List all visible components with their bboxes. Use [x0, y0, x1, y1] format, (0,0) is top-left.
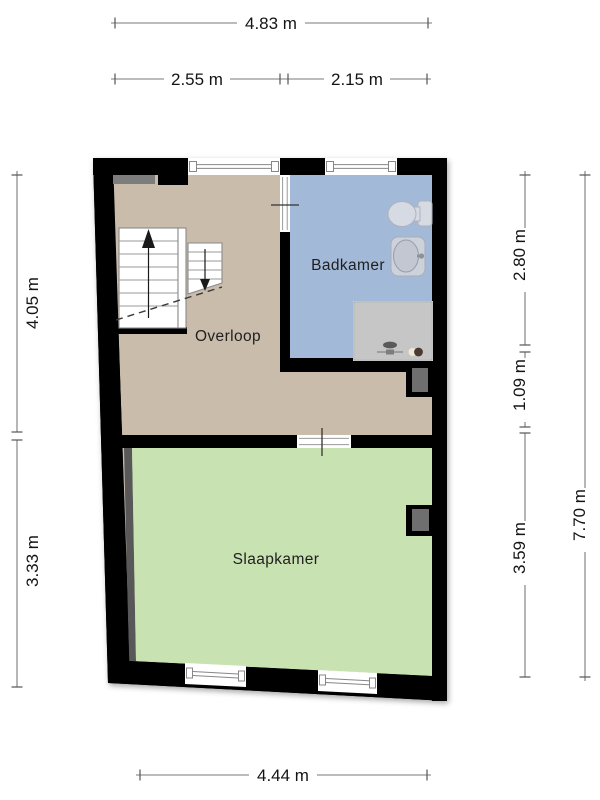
sink-icon — [391, 237, 425, 276]
dimension-label: 1.09 m — [510, 359, 529, 411]
dimension-top-total: 4.83 m — [111, 14, 432, 33]
dimension-label: 3.33 m — [23, 535, 42, 587]
dimension-label: 4.05 m — [23, 277, 42, 329]
toilet-icon — [388, 201, 432, 227]
dimension-right-total: 7.70 m — [570, 171, 591, 681]
floor-plan: Overloop Badkamer Slaapkamer — [93, 158, 447, 701]
dimension-label: 2.55 m — [171, 70, 223, 89]
window-top-right — [325, 158, 397, 175]
window-top-left — [188, 158, 280, 175]
duct-niche-hall — [412, 368, 428, 392]
room-label-badkamer: Badkamer — [311, 257, 385, 274]
dimension-bottom-slaapkamer: 4.44 m — [136, 766, 431, 785]
dimension-left-slaapkamer: 3.33 m — [12, 440, 43, 687]
floorplan-page: Overloop Badkamer Slaapkamer 4.83 m 2.55… — [0, 0, 600, 800]
dimension-right-slaapkamer: 3.59 m — [510, 433, 531, 677]
dimension-label: 4.83 m — [245, 14, 297, 33]
floorplan-canvas: Overloop Badkamer Slaapkamer 4.83 m 2.55… — [0, 0, 600, 800]
dimension-right-hall: 1.09 m — [510, 352, 531, 427]
dimension-label: 4.44 m — [257, 766, 309, 785]
dimension-label: 2.15 m — [331, 70, 383, 89]
dimension-label: 7.70 m — [570, 489, 589, 541]
shower-icon — [354, 302, 432, 360]
dimension-right-badkamer: 2.80 m — [510, 171, 531, 345]
dimension-top-badkamer: 2.15 m — [284, 70, 431, 89]
duct-niche-bedroom — [412, 509, 429, 531]
dimension-top-overloop: 2.55 m — [111, 70, 284, 89]
room-label-slaapkamer: Slaapkamer — [233, 551, 320, 568]
room-label-overloop: Overloop — [195, 328, 261, 345]
dimension-label: 2.80 m — [510, 229, 529, 281]
wall-niche-top-left — [113, 175, 155, 184]
window-bottom-right — [318, 670, 377, 694]
dimension-left-overloop: 4.05 m — [12, 171, 43, 432]
window-bottom-left — [185, 663, 246, 687]
dimension-label: 3.59 m — [510, 522, 529, 574]
